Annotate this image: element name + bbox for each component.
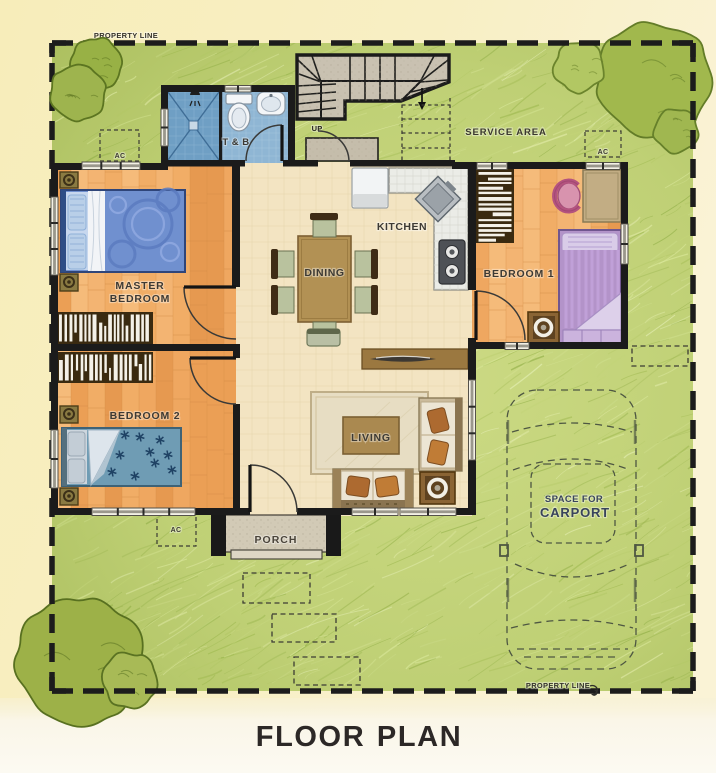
svg-text:MASTER: MASTER xyxy=(115,280,164,292)
svg-text:KITCHEN: KITCHEN xyxy=(377,221,427,233)
svg-text:AC: AC xyxy=(171,527,182,534)
svg-text:BEDROOM 2: BEDROOM 2 xyxy=(110,410,181,422)
svg-text:BEDROOM 1: BEDROOM 1 xyxy=(484,268,555,280)
svg-text:SPACE FOR: SPACE FOR xyxy=(545,494,603,505)
svg-text:FLOOR PLAN: FLOOR PLAN xyxy=(256,721,463,753)
svg-text:LIVING: LIVING xyxy=(351,432,391,444)
svg-text:PORCH: PORCH xyxy=(255,534,298,546)
svg-text:T & B: T & B xyxy=(222,137,249,148)
svg-text:BEDROOM: BEDROOM xyxy=(110,293,170,305)
svg-text:DINING: DINING xyxy=(304,267,344,279)
svg-text:AC: AC xyxy=(598,149,609,156)
svg-text:CARPORT: CARPORT xyxy=(540,505,610,520)
svg-text:SERVICE AREA: SERVICE AREA xyxy=(465,127,547,138)
svg-text:PROPERTY LINE: PROPERTY LINE xyxy=(526,681,590,690)
svg-text:AC: AC xyxy=(115,153,126,160)
